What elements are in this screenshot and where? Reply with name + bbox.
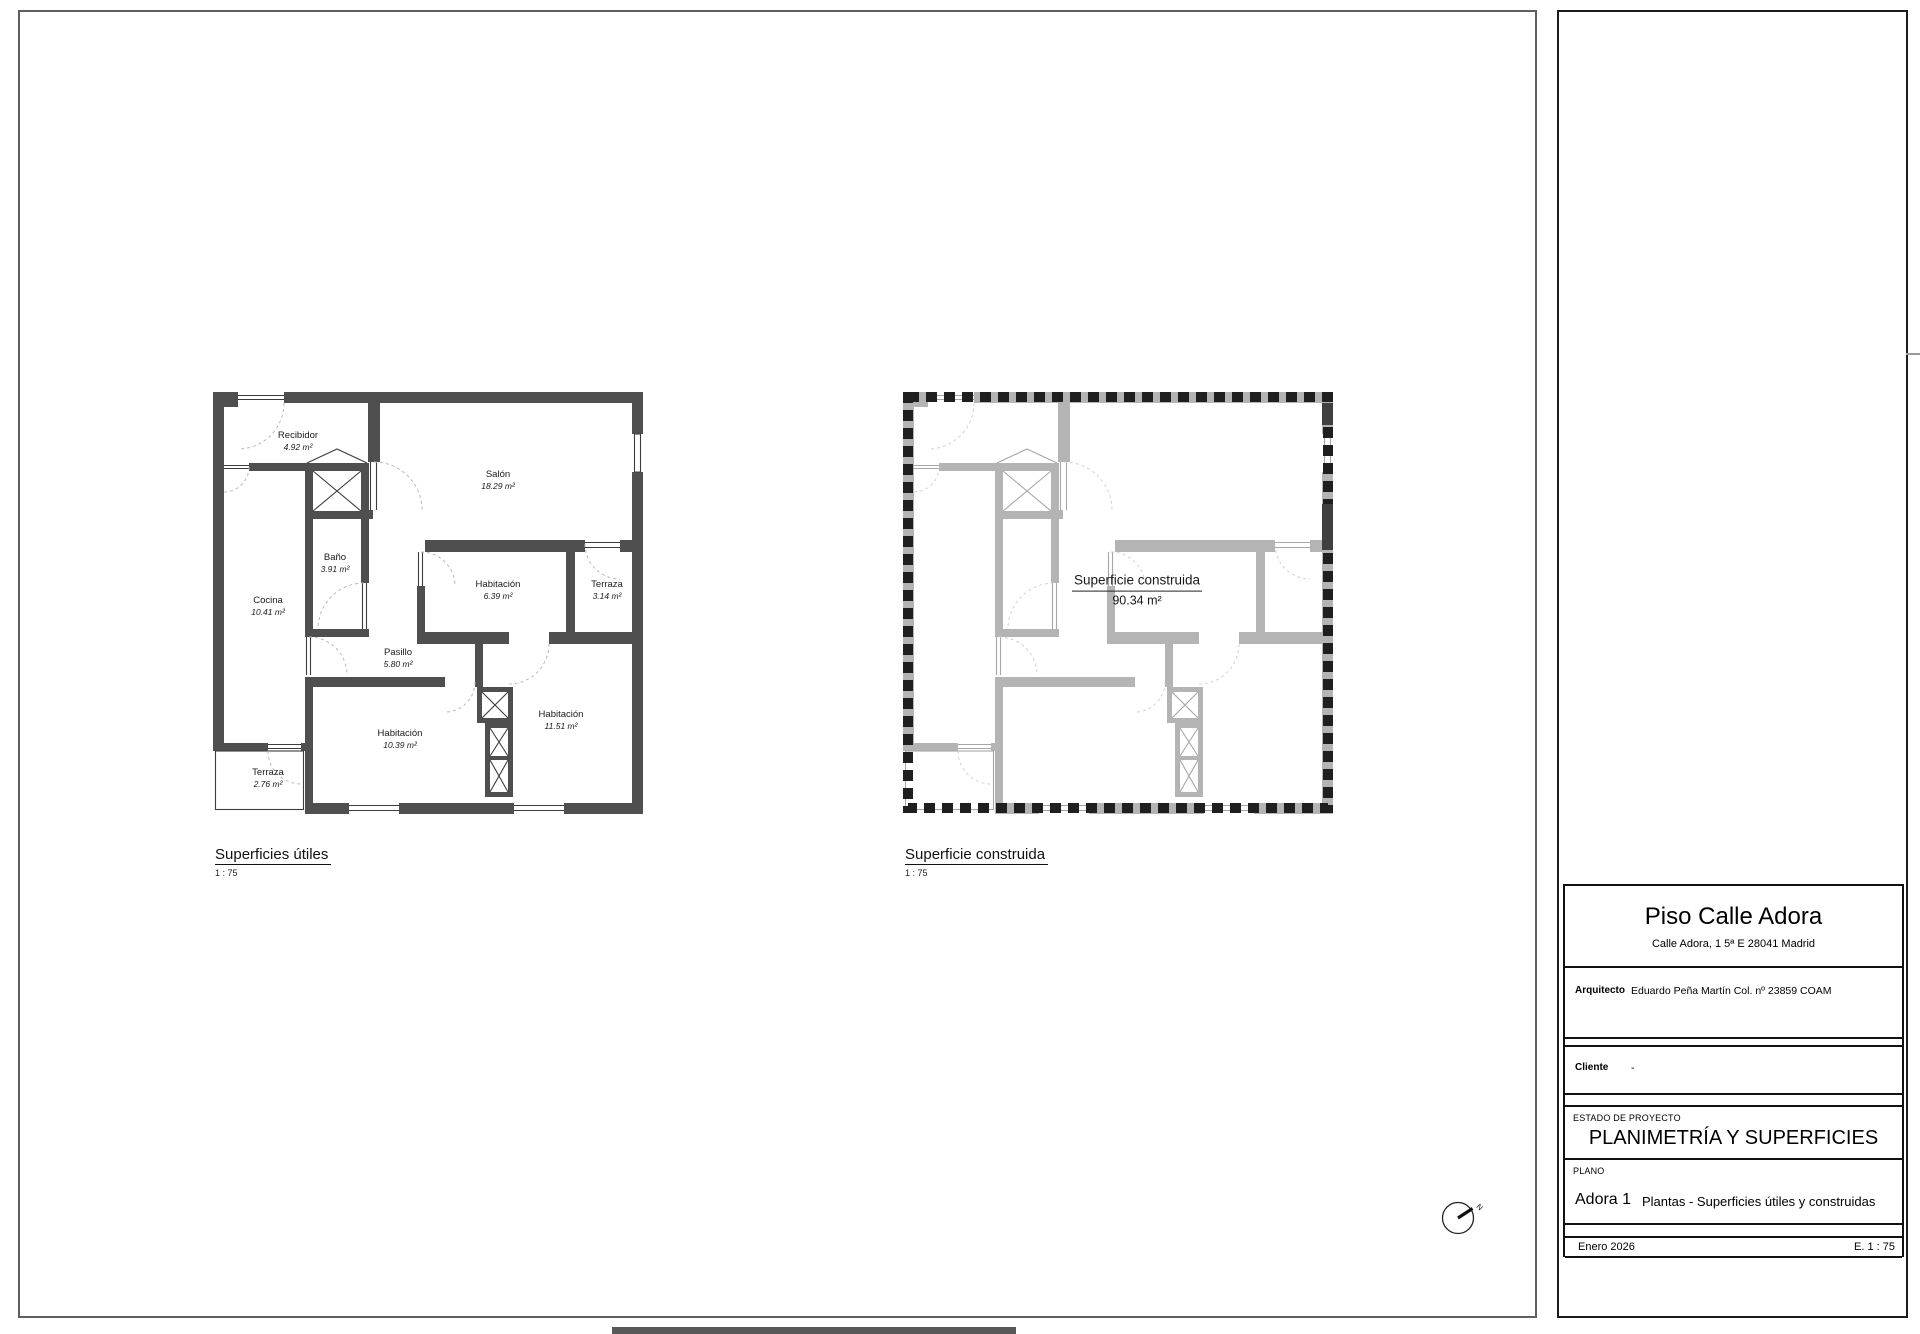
room-label: Baño 3.91 m² xyxy=(321,552,350,575)
room-name: Recibidor xyxy=(278,430,318,442)
room-label: Salón 18.29 m² xyxy=(481,469,515,492)
north-letter: N xyxy=(1475,1202,1485,1212)
room-label: Cocina 10.41 m² xyxy=(251,595,285,618)
title-block-header: Piso Calle Adora Calle Adora, 1 5ª E 280… xyxy=(1565,886,1902,968)
room-name: Cocina xyxy=(251,595,285,607)
caption-title: Superficie construida xyxy=(905,846,1048,865)
plano-description: Plantas - Superficies útiles y construid… xyxy=(1642,1194,1875,1209)
perimeter-pillar-block xyxy=(1322,504,1333,550)
built-area-title: Superficie construida xyxy=(1072,572,1202,592)
client-value: - xyxy=(1631,1062,1635,1074)
architect-value: Eduardo Peña Martín Col. nº 23859 COAM xyxy=(1631,985,1832,997)
room-area: 6.39 m² xyxy=(476,591,521,602)
room-label: Habitación 6.39 m² xyxy=(476,579,521,602)
architect-section: Arquitecto Eduardo Peña Martín Col. nº 2… xyxy=(1565,968,1902,1039)
estado-value: PLANIMETRÍA Y SUPERFICIES xyxy=(1565,1127,1902,1150)
caption-title: Superficies útiles xyxy=(215,846,331,865)
title-block-footer: Enero 2026 E. 1 : 75 xyxy=(1565,1236,1902,1258)
room-area: 18.29 m² xyxy=(481,481,515,492)
project-state-top: ESTADO DE PROYECTO PLANIMETRÍA Y SUPERFI… xyxy=(1565,1107,1902,1160)
sheet-scale: E. 1 : 75 xyxy=(1854,1241,1895,1253)
left-plan-caption: Superficies útiles 1 : 75 xyxy=(215,846,331,878)
caption-scale: 1 : 75 xyxy=(215,868,331,878)
room-name: Terraza xyxy=(591,579,623,591)
plano-label: PLANO xyxy=(1573,1166,1605,1176)
room-label: Terraza 2.76 m² xyxy=(252,767,284,790)
panel-edge-tick xyxy=(1906,353,1920,355)
room-label: Recibidor 4.92 m² xyxy=(278,430,318,453)
room-label: Habitación 10.39 m² xyxy=(378,728,423,751)
client-section: Cliente - xyxy=(1565,1045,1902,1095)
architect-label: Arquitecto xyxy=(1575,985,1625,996)
room-area: 5.80 m² xyxy=(384,659,413,670)
north-arrow-icon: N xyxy=(1438,1196,1502,1242)
room-name: Salón xyxy=(481,469,515,481)
project-state-section: ESTADO DE PROYECTO PLANIMETRÍA Y SUPERFI… xyxy=(1565,1105,1902,1225)
built-area-value: 90.34 m² xyxy=(1072,592,1202,608)
estado-label: ESTADO DE PROYECTO xyxy=(1573,1113,1681,1123)
room-name: Habitación xyxy=(476,579,521,591)
project-address: Calle Adora, 1 5ª E 28041 Madrid xyxy=(1565,938,1902,950)
room-area: 3.14 m² xyxy=(591,591,623,602)
room-area: 4.92 m² xyxy=(278,442,318,453)
sheet-date: Enero 2026 xyxy=(1578,1241,1635,1253)
caption-scale: 1 : 75 xyxy=(905,868,1048,878)
project-title: Piso Calle Adora xyxy=(1565,903,1902,931)
room-label: Pasillo 5.80 m² xyxy=(384,647,413,670)
bottom-edge-bar xyxy=(612,1327,1016,1334)
room-area: 10.41 m² xyxy=(251,607,285,618)
perimeter-pillar-block xyxy=(1322,403,1333,425)
room-area: 3.91 m² xyxy=(321,564,350,575)
room-name: Habitación xyxy=(378,728,423,740)
room-area: 10.39 m² xyxy=(378,740,423,751)
client-label: Cliente xyxy=(1575,1062,1608,1073)
room-name: Baño xyxy=(321,552,350,564)
plano-code: Adora 1 xyxy=(1575,1191,1631,1209)
room-label: Habitación 11.51 m² xyxy=(539,709,584,732)
room-name: Pasillo xyxy=(384,647,413,659)
plan-sheet: { "sheet": { "plans": { "left": { "capti… xyxy=(0,0,1920,1334)
room-label: Terraza 3.14 m² xyxy=(591,579,623,602)
room-area: 11.51 m² xyxy=(539,721,584,732)
room-area: 2.76 m² xyxy=(252,779,284,790)
title-block: Piso Calle Adora Calle Adora, 1 5ª E 280… xyxy=(1563,884,1904,1257)
built-area-label: Superficie construida 90.34 m² xyxy=(1072,572,1202,609)
room-name: Terraza xyxy=(252,767,284,779)
room-name: Habitación xyxy=(539,709,584,721)
right-plan-caption: Superficie construida 1 : 75 xyxy=(905,846,1048,878)
